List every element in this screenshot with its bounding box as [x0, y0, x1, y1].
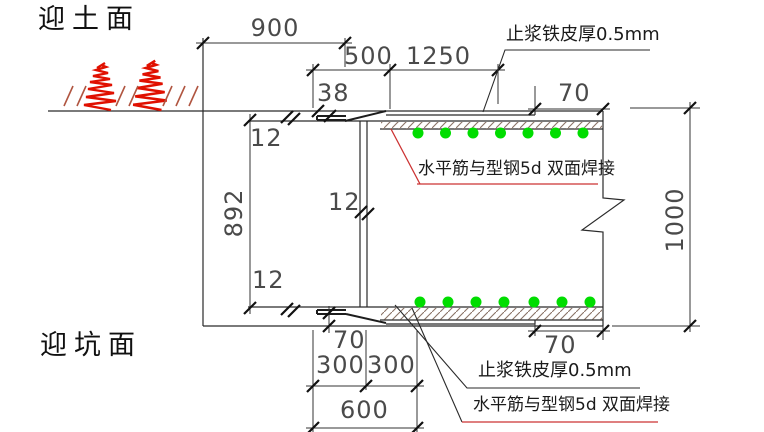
rebar-dot — [440, 128, 451, 139]
web-lines — [360, 121, 367, 307]
dim-500: 500 — [344, 44, 393, 69]
rebar-dot — [529, 297, 540, 308]
soil-hatch-marks — [64, 86, 198, 106]
dim-70-bottom-left: 70 — [333, 328, 366, 353]
grout-stop-sheet-label-top: 止浆铁皮厚0.5mm — [506, 26, 660, 45]
dim-12-top: 12 — [250, 126, 283, 151]
weld-note-label-top: 水平筋与型钢5d 双面焊接 — [418, 161, 615, 179]
dim-12-mid: 12 — [328, 190, 361, 215]
grout-stop-sheet-label-bottom: 止浆铁皮厚0.5mm — [478, 362, 632, 381]
rebar-dot — [557, 297, 568, 308]
rebar-dot — [585, 297, 596, 308]
dim-12-bottom: 12 — [252, 268, 285, 293]
top-sheet-tail — [317, 116, 346, 120]
top-hatch-strip — [381, 122, 602, 129]
rebar-dot — [413, 128, 424, 139]
rebar-dot — [550, 128, 561, 139]
rebar-dot — [495, 128, 506, 139]
dim-70-bottom-right: 70 — [544, 333, 577, 358]
rebar-dot — [415, 297, 426, 308]
top-sheet-taper — [345, 111, 386, 121]
rebar-dot — [523, 128, 534, 139]
rebar-dot — [578, 128, 589, 139]
dim-300-left: 300 — [316, 353, 365, 378]
detail-drawing: 迎土面 迎坑面 900 500 1250 38 70 12 892 12 100… — [0, 0, 764, 432]
dim-300-right: 300 — [367, 353, 416, 378]
dim-1250: 1250 — [406, 44, 471, 69]
dim-900: 900 — [233, 16, 317, 41]
soil-symbols — [64, 61, 198, 110]
plate-details — [317, 111, 386, 323]
dim-1000: 1000 — [663, 182, 689, 258]
rebar-dot — [443, 297, 454, 308]
weld-note-label-bottom: 水平筋与型钢5d 双面焊接 — [473, 397, 670, 415]
soil-side-label: 迎土面 — [38, 6, 140, 34]
dim-38: 38 — [317, 81, 350, 106]
soil-coil-icon — [84, 63, 116, 110]
leader-weld-bottom — [412, 308, 462, 422]
pit-side-label: 迎坑面 — [40, 332, 142, 360]
beam-edge-break — [582, 111, 624, 326]
dim-600: 600 — [340, 398, 389, 423]
rebar-dot — [468, 128, 479, 139]
soil-coil-icon — [133, 61, 167, 110]
bottom-sheet-taper — [346, 314, 386, 323]
rebar-dot — [471, 297, 482, 308]
dim-70-top: 70 — [558, 81, 591, 106]
rebar-dot — [499, 297, 510, 308]
rebar-dots-bottom — [415, 297, 596, 308]
dim-892: 892 — [222, 183, 248, 243]
